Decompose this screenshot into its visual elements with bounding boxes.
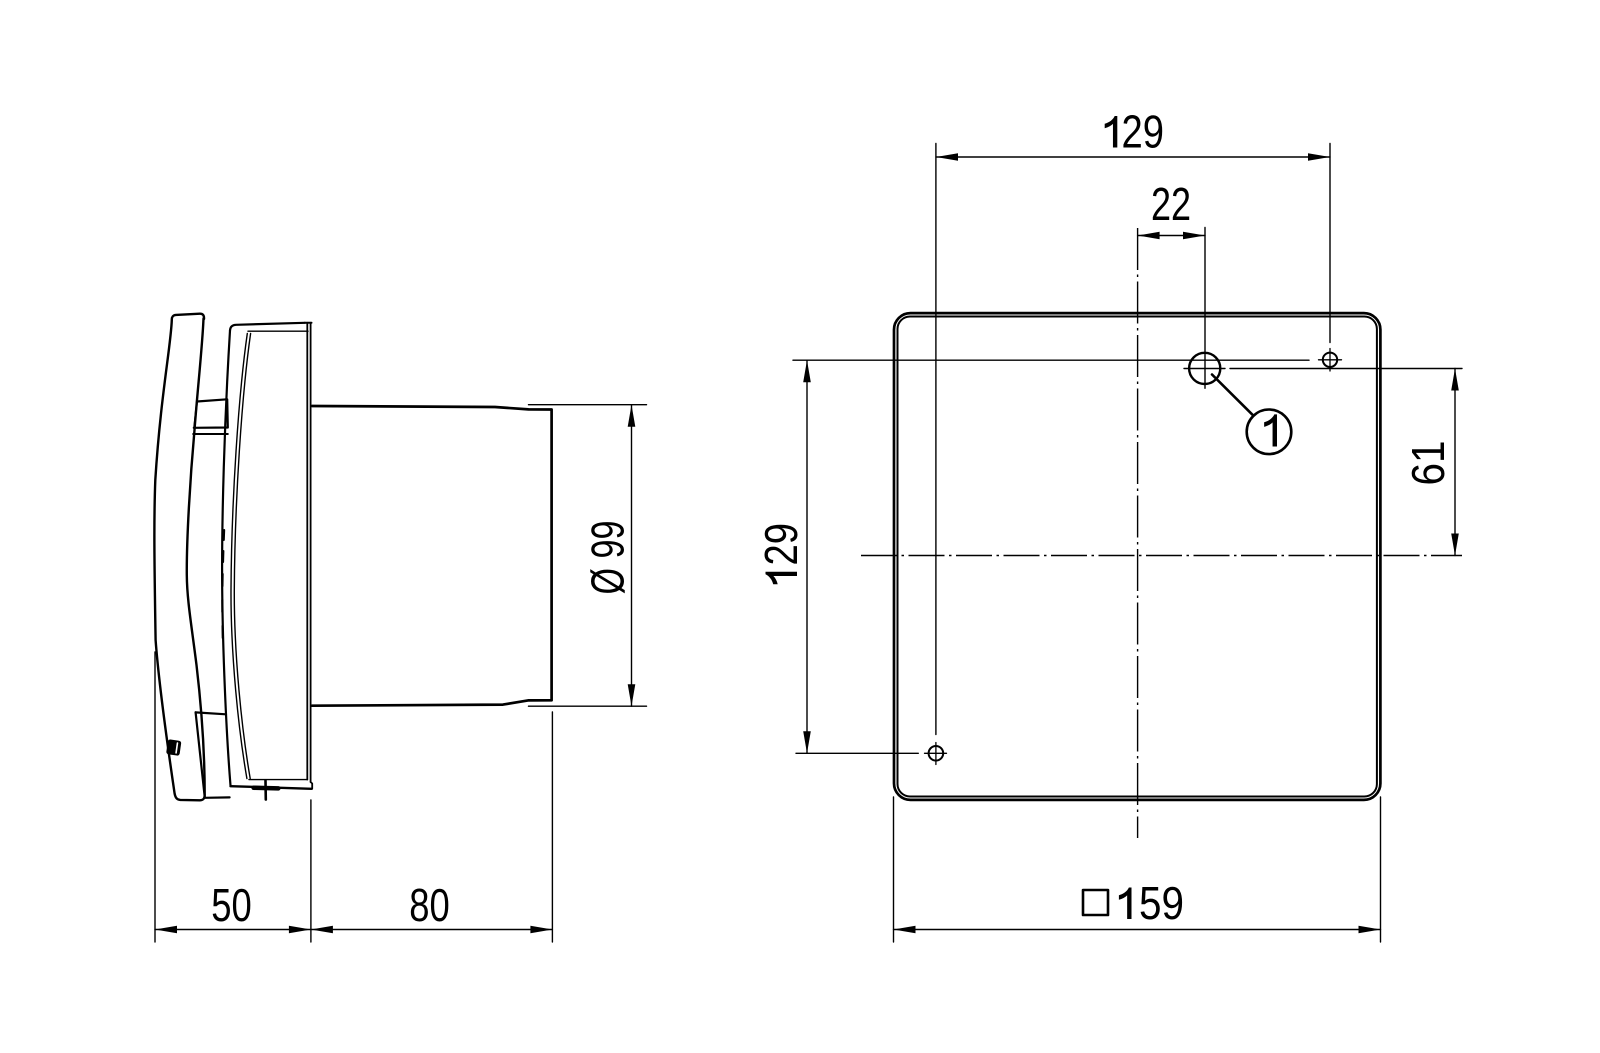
- svg-text:22: 22: [1151, 178, 1191, 230]
- svg-text:61: 61: [1402, 441, 1454, 486]
- svg-text:Ø 99: Ø 99: [582, 521, 634, 595]
- svg-text:29: 29: [1122, 106, 1165, 158]
- svg-text:50: 50: [211, 879, 252, 931]
- svg-text:29: 29: [755, 523, 807, 566]
- svg-text:59: 59: [1139, 877, 1184, 929]
- svg-text:80: 80: [409, 879, 450, 931]
